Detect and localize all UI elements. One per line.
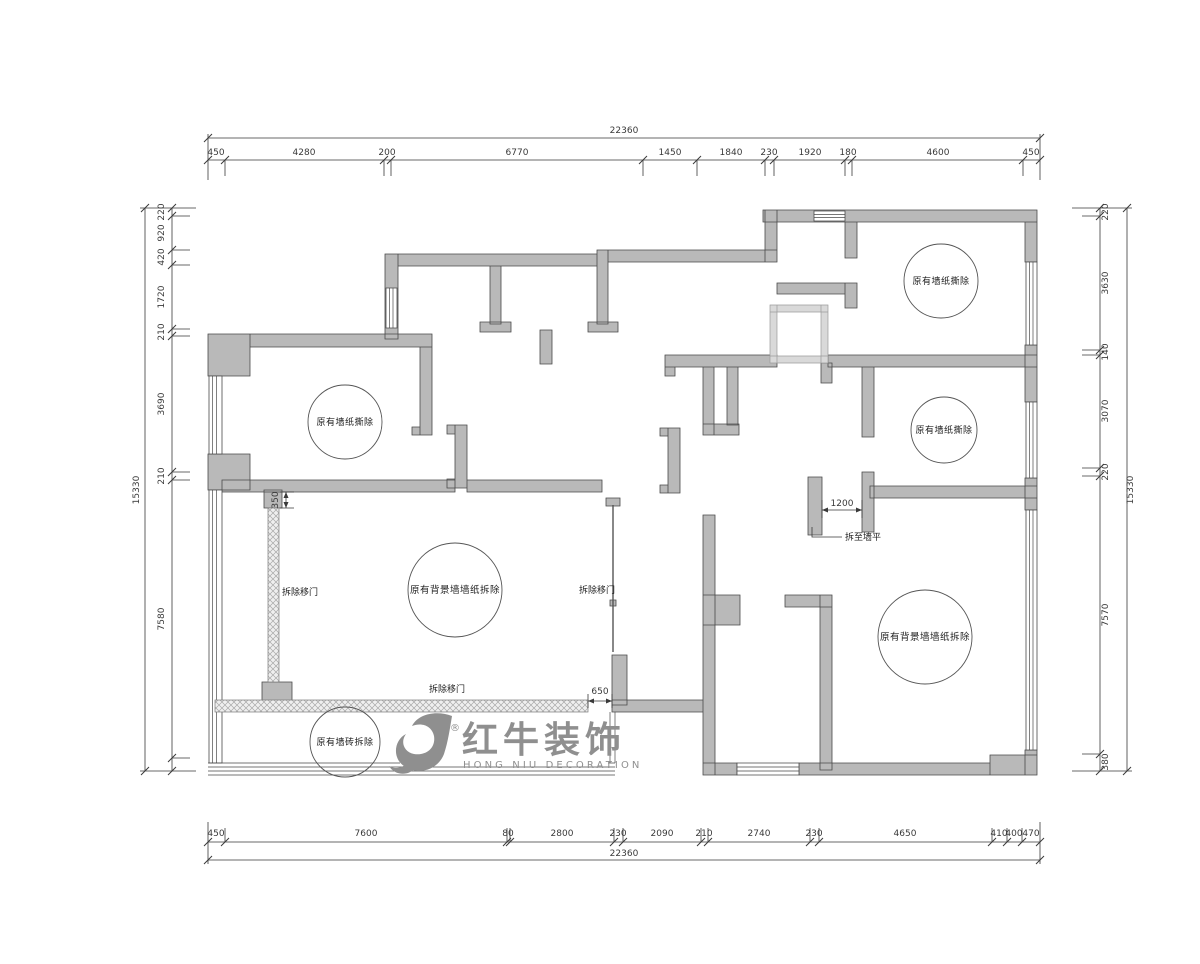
dim-1200-label: 1200 [831,499,854,509]
dim-left-total: 15330 [132,475,142,504]
dim-top-total: 22360 [610,126,639,136]
dim-top-seg: 1840 [720,148,743,158]
light-shaft-walls [770,305,828,363]
dim-right-seg: 140 [1101,343,1111,360]
dim-bottom-seg: 230 [805,829,822,839]
dim-bottom-seg: 210 [695,829,712,839]
sliding-door-hatch-bottom [215,700,588,712]
dim-right-total: 15330 [1126,475,1136,504]
dimension-left: 15330 220 920 420 1720 210 3690 210 7580 [132,203,196,775]
dim-right-seg: 380 [1101,753,1111,770]
dim-top-seg: 450 [207,148,224,158]
dim-top-seg: 4280 [293,148,316,158]
walls-layer [208,210,1037,775]
room-label-bgwall-1: 原有背景墙墙纸拆除 [410,584,500,596]
dim-bottom-seg: 7600 [355,829,378,839]
demolition-hatch-layer [215,508,588,712]
annotation-remove-sliding-door-bottom: 拆除移门 [429,683,465,695]
dim-bottom-seg: 470 [1022,829,1039,839]
dim-bottom-total: 22360 [610,849,639,859]
dim-top-seg: 1920 [799,148,822,158]
dim-left-lines [140,208,196,771]
dim-right-seg: 3630 [1101,271,1111,294]
dim-650-label: 650 [591,687,608,697]
dim-bottom-seg: 450 [207,829,224,839]
dim-left-seg: 1720 [157,285,167,308]
dim-left-seg: 210 [157,323,167,340]
dimension-right: 15330 220 3630 140 3070 220 7570 380 [1072,203,1136,775]
dim-left-seg: 420 [157,248,167,265]
dim-bottom-seg: 80 [502,829,514,839]
sliding-door-hatch-left [268,508,279,682]
dim-bottom-seg: 2740 [748,829,771,839]
dim-top-seg: 4600 [927,148,950,158]
dim-bottom-seg: 2090 [651,829,674,839]
dim-bottom-seg: 2800 [551,829,574,839]
room-label-wallpaper-3: 原有墙纸撕除 [915,424,972,436]
floor-plan-drawing: 原有墙纸撕除 原有墙纸撕除 原有墙纸撕除 原有背景墙墙纸拆除 原有背景墙墙纸拆除… [0,0,1200,964]
dim-top-seg: 450 [1022,148,1039,158]
dim-left-seg: 920 [157,224,167,241]
logo-registered-mark: ® [450,723,460,734]
room-label-wallpaper-2: 原有墙纸撕除 [912,275,969,287]
dim-right-seg: 3070 [1101,399,1111,422]
dim-bottom-seg: 230 [609,829,626,839]
dim-top-lines [208,134,1040,180]
dim-left-seg: 210 [157,467,167,484]
dim-top-ticks [204,134,1044,164]
dim-right-seg: 7570 [1101,603,1111,626]
dim-left-seg: 220 [157,203,167,220]
logo-chinese-name: 红牛装饰 [462,720,626,761]
hongniu-logo: ® 红牛装饰 HONG NIU DECORATION [389,713,643,774]
dim-left-seg: 7580 [157,607,167,630]
dim-left-seg: 3690 [157,392,167,415]
dim-350-label: 350 [271,491,281,508]
dimension-top: 22360 450 4280 200 6770 1450 1840 230 19… [204,126,1044,180]
room-labels [308,244,978,777]
dim-right-seg: 220 [1101,463,1111,480]
dim-top-seg: 1450 [659,148,682,158]
room-label-wallpaper-1: 原有墙纸撕除 [316,416,373,428]
room-label-walltile: 原有墙砖拆除 [316,736,373,748]
annotation-remove-sliding-door-center: 拆除移门 [579,584,615,596]
room-label-bgwall-2: 原有背景墙墙纸拆除 [880,631,970,643]
dim-top-seg: 6770 [506,148,529,158]
annotation-demolish-flush: 拆至墙平 [845,531,881,543]
dim-right-seg: 220 [1101,203,1111,220]
logo-english-name: HONG NIU DECORATION [463,760,643,771]
wall-segments [208,210,1037,775]
dim-bottom-seg: 400 [1005,829,1022,839]
annotation-remove-sliding-door-left: 拆除移门 [282,586,318,598]
dim-top-seg: 180 [839,148,856,158]
dim-top-seg: 200 [378,148,395,158]
dim-top-seg: 230 [760,148,777,158]
dimension-bottom: 22360 450 7600 80 2800 230 2090 210 2740… [204,822,1044,864]
dim-bottom-seg: 4650 [894,829,917,839]
